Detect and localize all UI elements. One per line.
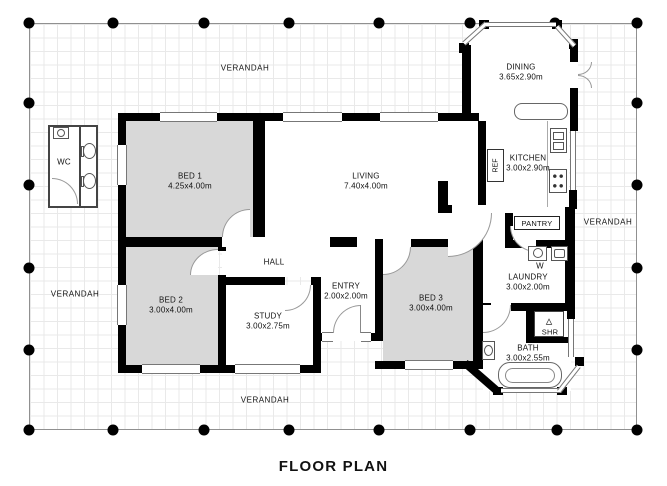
window (235, 364, 300, 374)
wall-segment (375, 361, 405, 369)
wall-segment (118, 365, 142, 373)
kitchen-sink-bowl (553, 132, 564, 140)
washing-machine-drum (533, 248, 543, 258)
room-label-living: LIVING7.40x4.00m (344, 172, 388, 191)
verandah-post (284, 425, 295, 436)
verandah-post (199, 425, 210, 436)
verandah-post (374, 425, 385, 436)
wall-segment (118, 185, 126, 285)
verandah-post (24, 345, 35, 356)
wall-segment (478, 121, 486, 205)
laundry-tub-bowl (554, 249, 565, 258)
window (568, 319, 574, 357)
bath-basin-bowl (484, 345, 493, 356)
verandah-post (199, 18, 210, 29)
window (117, 285, 127, 325)
room-label-laundry: LAUNDRY3.00x2.00m (506, 273, 550, 292)
window (142, 364, 200, 374)
wall-segment (511, 303, 571, 311)
verandah-post (552, 425, 563, 436)
wall-segment (526, 337, 568, 343)
room-label-kitchen: KITCHEN3.00x2.90m (506, 154, 550, 173)
wall-segment (200, 365, 235, 373)
toilet-tank (81, 176, 84, 187)
kitchen-sink-bowl (553, 142, 564, 150)
wall-segment (218, 277, 285, 285)
floor-plan-canvas: REF ▵ BED 14.25x4.00m LIVING7.40x4.00m D… (0, 0, 667, 486)
wall-segment (300, 365, 321, 373)
window (361, 332, 371, 342)
verandah-post (24, 263, 35, 274)
door-leaf-entry (360, 305, 361, 333)
room-label-study: STUDY3.00x2.75m (246, 312, 290, 331)
verandah-post (632, 263, 643, 274)
verandah-post (108, 425, 119, 436)
verandah-post (24, 18, 35, 29)
verandah-post (465, 425, 476, 436)
fridge-icon: REF (487, 149, 504, 182)
verandah-label-top: VERANDAH (221, 63, 269, 73)
window (380, 112, 438, 122)
washer-label: W (536, 261, 544, 271)
wall-segment (218, 247, 226, 251)
wc-divider (79, 125, 81, 208)
wall-segment (438, 205, 452, 213)
wall-segment (313, 333, 322, 341)
toilet-tank (81, 146, 84, 157)
verandah-post (632, 98, 643, 109)
wall-segment (375, 239, 383, 341)
wall-segment (218, 275, 226, 365)
room-label-bath: BATH3.00x2.55m (506, 344, 550, 363)
room-label-entry: ENTRY2.00x2.00m (324, 282, 368, 301)
wc-basin-bowl (57, 129, 65, 137)
window (160, 112, 217, 122)
room-label-hall: HALL (264, 257, 285, 267)
window (570, 131, 576, 190)
bathtub-inner (505, 368, 555, 383)
pantry-label-box: PANTRY (514, 216, 560, 230)
wall-segment (330, 237, 357, 247)
room-label-wc: WC (57, 157, 71, 167)
wall-segment (253, 121, 265, 237)
window (501, 388, 561, 393)
window (283, 112, 342, 122)
toilet-icon (83, 173, 96, 189)
toilet-icon (83, 143, 96, 159)
wall-segment (462, 45, 471, 121)
verandah-post (632, 18, 643, 29)
room-label-dining: DINING3.65x2.90m (499, 63, 543, 82)
verandah-label-bottom: VERANDAH (241, 395, 289, 405)
verandah-post (374, 18, 385, 29)
wall-segment (570, 45, 578, 62)
room-label-bed3: BED 33.00x4.00m (409, 294, 453, 313)
window (117, 145, 127, 185)
verandah-post (284, 18, 295, 29)
verandah-post (632, 345, 643, 356)
room-label-bed2: BED 23.00x4.00m (149, 296, 193, 315)
verandah-label-left: VERANDAH (51, 289, 99, 299)
wall-segment (567, 305, 575, 319)
verandah-label-right: VERANDAH (584, 217, 632, 227)
window (405, 360, 453, 370)
room-label-bed1: BED 14.25x4.00m (168, 172, 212, 191)
verandah-post (465, 18, 476, 29)
fridge-label: REF (492, 159, 499, 173)
verandah-post (108, 18, 119, 29)
stove-icon (549, 169, 567, 193)
verandah-post (24, 425, 35, 436)
verandah-post (632, 180, 643, 191)
verandah-post (632, 425, 643, 436)
wall-segment (118, 237, 222, 247)
wall-segment (313, 277, 321, 373)
shower-label: SHR (542, 327, 558, 337)
kitchen-bench (514, 103, 568, 120)
wall-segment (570, 88, 578, 131)
verandah-post (24, 180, 35, 191)
page-title: FLOOR PLAN (0, 458, 667, 475)
window (322, 332, 333, 342)
window (486, 22, 556, 27)
verandah-post (24, 98, 35, 109)
wall-segment (118, 113, 126, 145)
